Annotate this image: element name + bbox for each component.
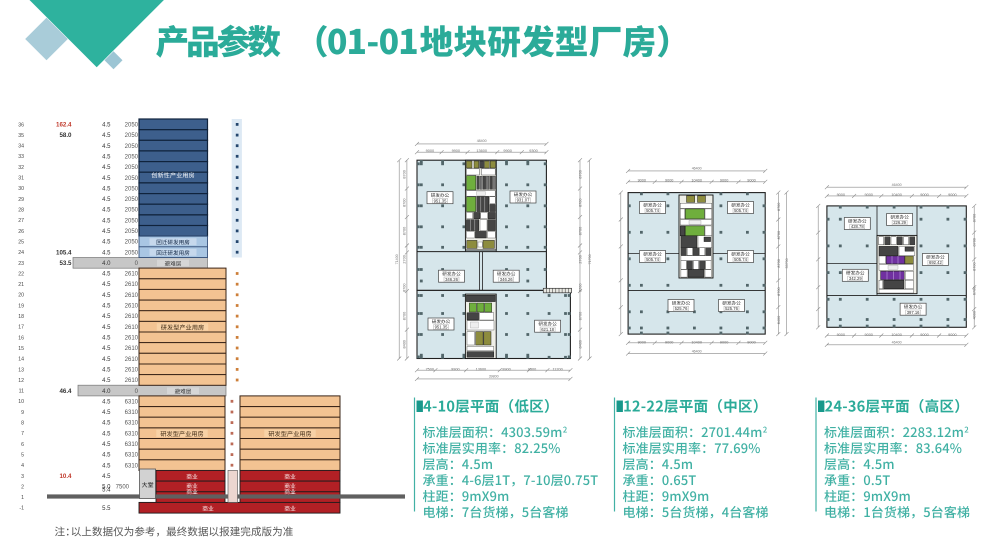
svg-text:9900: 9900 bbox=[502, 368, 510, 372]
svg-text:6310: 6310 bbox=[125, 431, 139, 437]
svg-text:30: 30 bbox=[18, 186, 24, 192]
svg-text:342.29: 342.29 bbox=[849, 276, 862, 281]
svg-text:28: 28 bbox=[18, 208, 24, 214]
svg-text:8700: 8700 bbox=[579, 227, 583, 235]
svg-text:6310: 6310 bbox=[125, 421, 139, 427]
svg-text:8400: 8400 bbox=[777, 316, 781, 324]
svg-text:2700: 2700 bbox=[403, 255, 407, 263]
svg-text:9000: 9000 bbox=[638, 179, 646, 183]
svg-text:46400: 46400 bbox=[892, 340, 902, 344]
svg-text:8700: 8700 bbox=[973, 214, 977, 222]
svg-text:9000: 9000 bbox=[665, 340, 673, 344]
svg-text:8700: 8700 bbox=[403, 283, 407, 291]
svg-text:46400: 46400 bbox=[892, 183, 902, 187]
svg-text:10: 10 bbox=[18, 399, 24, 405]
svg-text:4.5: 4.5 bbox=[102, 133, 111, 139]
svg-text:33: 33 bbox=[18, 154, 24, 160]
svg-text:4.5: 4.5 bbox=[102, 442, 111, 448]
svg-text:9000: 9000 bbox=[638, 340, 646, 344]
svg-text:39800: 39800 bbox=[489, 374, 499, 378]
svg-text:951.35: 951.35 bbox=[434, 198, 447, 203]
svg-text:9000: 9000 bbox=[864, 333, 872, 337]
svg-text:4.5: 4.5 bbox=[102, 272, 111, 278]
svg-text:505.74: 505.74 bbox=[734, 257, 747, 262]
svg-text:9300: 9300 bbox=[528, 368, 536, 372]
svg-text:4.5: 4.5 bbox=[102, 410, 111, 416]
svg-text:1: 1 bbox=[21, 495, 24, 501]
svg-text:6310: 6310 bbox=[125, 453, 139, 459]
svg-text:2050: 2050 bbox=[125, 229, 139, 235]
svg-text:8700: 8700 bbox=[579, 283, 583, 291]
svg-text:9000: 9000 bbox=[920, 333, 928, 337]
svg-text:12: 12 bbox=[18, 378, 24, 384]
svg-text:505.74: 505.74 bbox=[734, 208, 747, 213]
svg-text:-1: -1 bbox=[19, 506, 24, 512]
svg-text:19: 19 bbox=[18, 303, 24, 309]
svg-text:4.5: 4.5 bbox=[102, 144, 111, 150]
svg-text:20: 20 bbox=[18, 293, 24, 299]
svg-text:4.5: 4.5 bbox=[102, 176, 111, 182]
svg-text:24: 24 bbox=[18, 250, 24, 256]
svg-text:8700: 8700 bbox=[777, 231, 781, 239]
svg-text:5.5: 5.5 bbox=[102, 506, 111, 512]
svg-text:46400: 46400 bbox=[692, 166, 702, 170]
svg-text:621.18: 621.18 bbox=[541, 327, 554, 332]
svg-text:9000: 9000 bbox=[864, 193, 872, 197]
svg-text:2050: 2050 bbox=[125, 240, 139, 246]
svg-text:4.5: 4.5 bbox=[102, 453, 111, 459]
svg-text:951.35: 951.35 bbox=[435, 325, 448, 330]
svg-text:2610: 2610 bbox=[125, 368, 139, 374]
svg-text:505.74: 505.74 bbox=[646, 208, 659, 213]
svg-text:2610: 2610 bbox=[125, 272, 139, 278]
svg-text:2: 2 bbox=[21, 484, 24, 490]
svg-text:8700: 8700 bbox=[973, 262, 977, 270]
svg-text:18: 18 bbox=[18, 314, 24, 320]
svg-text:2050: 2050 bbox=[125, 197, 139, 203]
svg-text:4.0: 4.0 bbox=[102, 389, 111, 395]
svg-text:71700: 71700 bbox=[588, 254, 592, 264]
svg-text:692.42: 692.42 bbox=[929, 260, 942, 265]
svg-text:8700: 8700 bbox=[579, 170, 583, 178]
svg-text:2050: 2050 bbox=[125, 165, 139, 171]
svg-text:4.5: 4.5 bbox=[102, 282, 111, 288]
svg-text:71400: 71400 bbox=[395, 254, 399, 264]
svg-text:36: 36 bbox=[18, 122, 24, 128]
svg-text:2700: 2700 bbox=[579, 255, 583, 263]
svg-text:2050: 2050 bbox=[125, 144, 139, 150]
svg-text:6310: 6310 bbox=[125, 410, 139, 416]
svg-text:9900: 9900 bbox=[503, 149, 511, 153]
svg-text:4000: 4000 bbox=[973, 311, 977, 319]
svg-text:9000: 9000 bbox=[747, 340, 755, 344]
svg-text:8700: 8700 bbox=[777, 203, 781, 211]
svg-text:8700: 8700 bbox=[403, 198, 407, 206]
svg-text:10400: 10400 bbox=[691, 340, 702, 344]
svg-text:9300: 9300 bbox=[529, 149, 537, 153]
svg-text:4.5: 4.5 bbox=[102, 154, 111, 160]
svg-text:21: 21 bbox=[18, 282, 24, 288]
svg-text:16: 16 bbox=[18, 335, 24, 341]
svg-text:15: 15 bbox=[18, 346, 24, 352]
svg-text:2610: 2610 bbox=[125, 357, 139, 363]
svg-text:162.4: 162.4 bbox=[56, 122, 72, 129]
svg-text:46.4: 46.4 bbox=[59, 388, 72, 395]
svg-text:4.5: 4.5 bbox=[102, 368, 111, 374]
svg-text:2050: 2050 bbox=[125, 186, 139, 192]
svg-text:8700: 8700 bbox=[973, 238, 977, 246]
svg-text:4.5: 4.5 bbox=[102, 304, 111, 310]
svg-text:6310: 6310 bbox=[125, 399, 139, 405]
svg-text:4.5: 4.5 bbox=[102, 314, 111, 320]
svg-text:2050: 2050 bbox=[125, 133, 139, 139]
svg-text:4.5: 4.5 bbox=[102, 399, 111, 405]
svg-text:4.5: 4.5 bbox=[102, 250, 111, 256]
svg-text:6310: 6310 bbox=[125, 442, 139, 448]
svg-text:4.5: 4.5 bbox=[102, 346, 111, 352]
svg-text:22: 22 bbox=[18, 271, 24, 277]
svg-text:34: 34 bbox=[18, 144, 24, 150]
svg-text:4.5: 4.5 bbox=[102, 421, 111, 427]
svg-text:9: 9 bbox=[21, 410, 24, 416]
svg-text:4.5: 4.5 bbox=[102, 357, 111, 363]
svg-text:4.0: 4.0 bbox=[102, 261, 111, 267]
svg-text:9900: 9900 bbox=[451, 368, 459, 372]
svg-text:9000: 9000 bbox=[720, 340, 728, 344]
svg-text:2610: 2610 bbox=[125, 346, 139, 352]
svg-text:6700: 6700 bbox=[973, 287, 977, 295]
svg-text:4.5: 4.5 bbox=[102, 186, 111, 192]
svg-text:2050: 2050 bbox=[125, 154, 139, 160]
svg-text:2050: 2050 bbox=[125, 208, 139, 214]
svg-text:2050: 2050 bbox=[125, 123, 139, 129]
svg-text:27: 27 bbox=[18, 218, 24, 224]
svg-text:8400: 8400 bbox=[579, 340, 583, 348]
svg-text:8700: 8700 bbox=[403, 170, 407, 178]
svg-text:23: 23 bbox=[18, 261, 24, 267]
svg-text:9000: 9000 bbox=[837, 193, 845, 197]
svg-text:29: 29 bbox=[18, 197, 24, 203]
svg-text:397.16: 397.16 bbox=[907, 310, 920, 315]
svg-text:11200: 11200 bbox=[552, 368, 562, 372]
svg-text:4.5: 4.5 bbox=[102, 463, 111, 469]
svg-text:53.5: 53.5 bbox=[59, 260, 72, 267]
svg-text:10400: 10400 bbox=[891, 333, 902, 337]
svg-text:4.5: 4.5 bbox=[102, 123, 111, 129]
svg-text:8700: 8700 bbox=[777, 259, 781, 267]
svg-text:8700: 8700 bbox=[403, 312, 407, 320]
svg-text:9000: 9000 bbox=[665, 179, 673, 183]
svg-text:4.5: 4.5 bbox=[102, 378, 111, 384]
svg-text:9000: 9000 bbox=[837, 333, 845, 337]
svg-text:9000: 9000 bbox=[948, 193, 956, 197]
svg-text:4: 4 bbox=[21, 463, 24, 469]
svg-text:4.5: 4.5 bbox=[102, 197, 111, 203]
svg-text:2050: 2050 bbox=[125, 218, 139, 224]
svg-text:931.07: 931.07 bbox=[517, 198, 530, 203]
svg-text:17: 17 bbox=[18, 325, 24, 331]
svg-text:6310: 6310 bbox=[125, 463, 139, 469]
svg-text:53700: 53700 bbox=[785, 258, 789, 268]
svg-text:5.4: 5.4 bbox=[102, 488, 111, 494]
svg-text:25: 25 bbox=[18, 240, 24, 246]
svg-text:13600: 13600 bbox=[476, 368, 487, 372]
svg-text:2610: 2610 bbox=[125, 282, 139, 288]
svg-text:3: 3 bbox=[21, 474, 24, 480]
svg-text:11: 11 bbox=[19, 389, 24, 395]
svg-text:8400: 8400 bbox=[403, 340, 407, 348]
svg-text:4.5: 4.5 bbox=[102, 325, 111, 331]
svg-text:14: 14 bbox=[18, 357, 24, 363]
svg-text:4.5: 4.5 bbox=[102, 165, 111, 171]
svg-text:428.78: 428.78 bbox=[851, 224, 864, 229]
svg-text:7: 7 bbox=[21, 431, 24, 437]
svg-text:2050: 2050 bbox=[125, 176, 139, 182]
svg-text:4.5: 4.5 bbox=[102, 208, 111, 214]
svg-text:8700: 8700 bbox=[403, 227, 407, 235]
svg-text:505.74: 505.74 bbox=[646, 257, 659, 262]
svg-text:8: 8 bbox=[21, 421, 24, 427]
svg-text:13600: 13600 bbox=[476, 149, 487, 153]
svg-text:10.4: 10.4 bbox=[59, 473, 72, 480]
svg-text:9000: 9000 bbox=[920, 193, 928, 197]
svg-text:2610: 2610 bbox=[125, 378, 139, 384]
svg-text:525.76: 525.76 bbox=[725, 306, 738, 311]
svg-text:8700: 8700 bbox=[579, 198, 583, 206]
svg-text:8700: 8700 bbox=[777, 287, 781, 295]
svg-text:9000: 9000 bbox=[948, 333, 956, 337]
svg-text:346.26: 346.26 bbox=[445, 277, 458, 282]
svg-text:4.5: 4.5 bbox=[102, 229, 111, 235]
svg-text:7500: 7500 bbox=[426, 368, 434, 372]
svg-text:525.76: 525.76 bbox=[675, 306, 688, 311]
svg-text:2610: 2610 bbox=[125, 314, 139, 320]
svg-text:9000: 9000 bbox=[426, 149, 434, 153]
svg-text:26: 26 bbox=[18, 229, 24, 235]
svg-text:35: 35 bbox=[18, 133, 24, 139]
svg-text:105.4: 105.4 bbox=[56, 249, 72, 256]
svg-text:9900: 9900 bbox=[452, 149, 460, 153]
svg-text:31: 31 bbox=[18, 176, 24, 182]
svg-text:5: 5 bbox=[21, 453, 24, 459]
svg-text:2610: 2610 bbox=[125, 304, 139, 310]
svg-text:8700: 8700 bbox=[579, 312, 583, 320]
svg-text:9000: 9000 bbox=[720, 179, 728, 183]
svg-text:7500: 7500 bbox=[116, 485, 130, 491]
svg-text:4.5: 4.5 bbox=[102, 218, 111, 224]
svg-text:2610: 2610 bbox=[125, 293, 139, 299]
svg-text:10400: 10400 bbox=[891, 193, 902, 197]
svg-text:4.5: 4.5 bbox=[102, 336, 111, 342]
svg-text:4.5: 4.5 bbox=[102, 474, 111, 480]
svg-text:4.5: 4.5 bbox=[102, 293, 111, 299]
svg-text:2610: 2610 bbox=[125, 325, 139, 331]
svg-text:46400: 46400 bbox=[692, 349, 702, 353]
svg-text:13: 13 bbox=[18, 367, 24, 373]
svg-text:346.26: 346.26 bbox=[500, 277, 513, 282]
svg-text:2050: 2050 bbox=[125, 250, 139, 256]
svg-text:4.5: 4.5 bbox=[102, 431, 111, 437]
svg-text:58.0: 58.0 bbox=[59, 132, 72, 139]
svg-text:226.29: 226.29 bbox=[893, 220, 906, 225]
svg-text:48400: 48400 bbox=[477, 139, 487, 143]
svg-text:4.5: 4.5 bbox=[102, 240, 111, 246]
svg-text:32: 32 bbox=[18, 165, 24, 171]
svg-text:10400: 10400 bbox=[691, 179, 702, 183]
svg-text:2610: 2610 bbox=[125, 336, 139, 342]
svg-text:6: 6 bbox=[21, 442, 24, 448]
svg-text:9000: 9000 bbox=[747, 179, 755, 183]
